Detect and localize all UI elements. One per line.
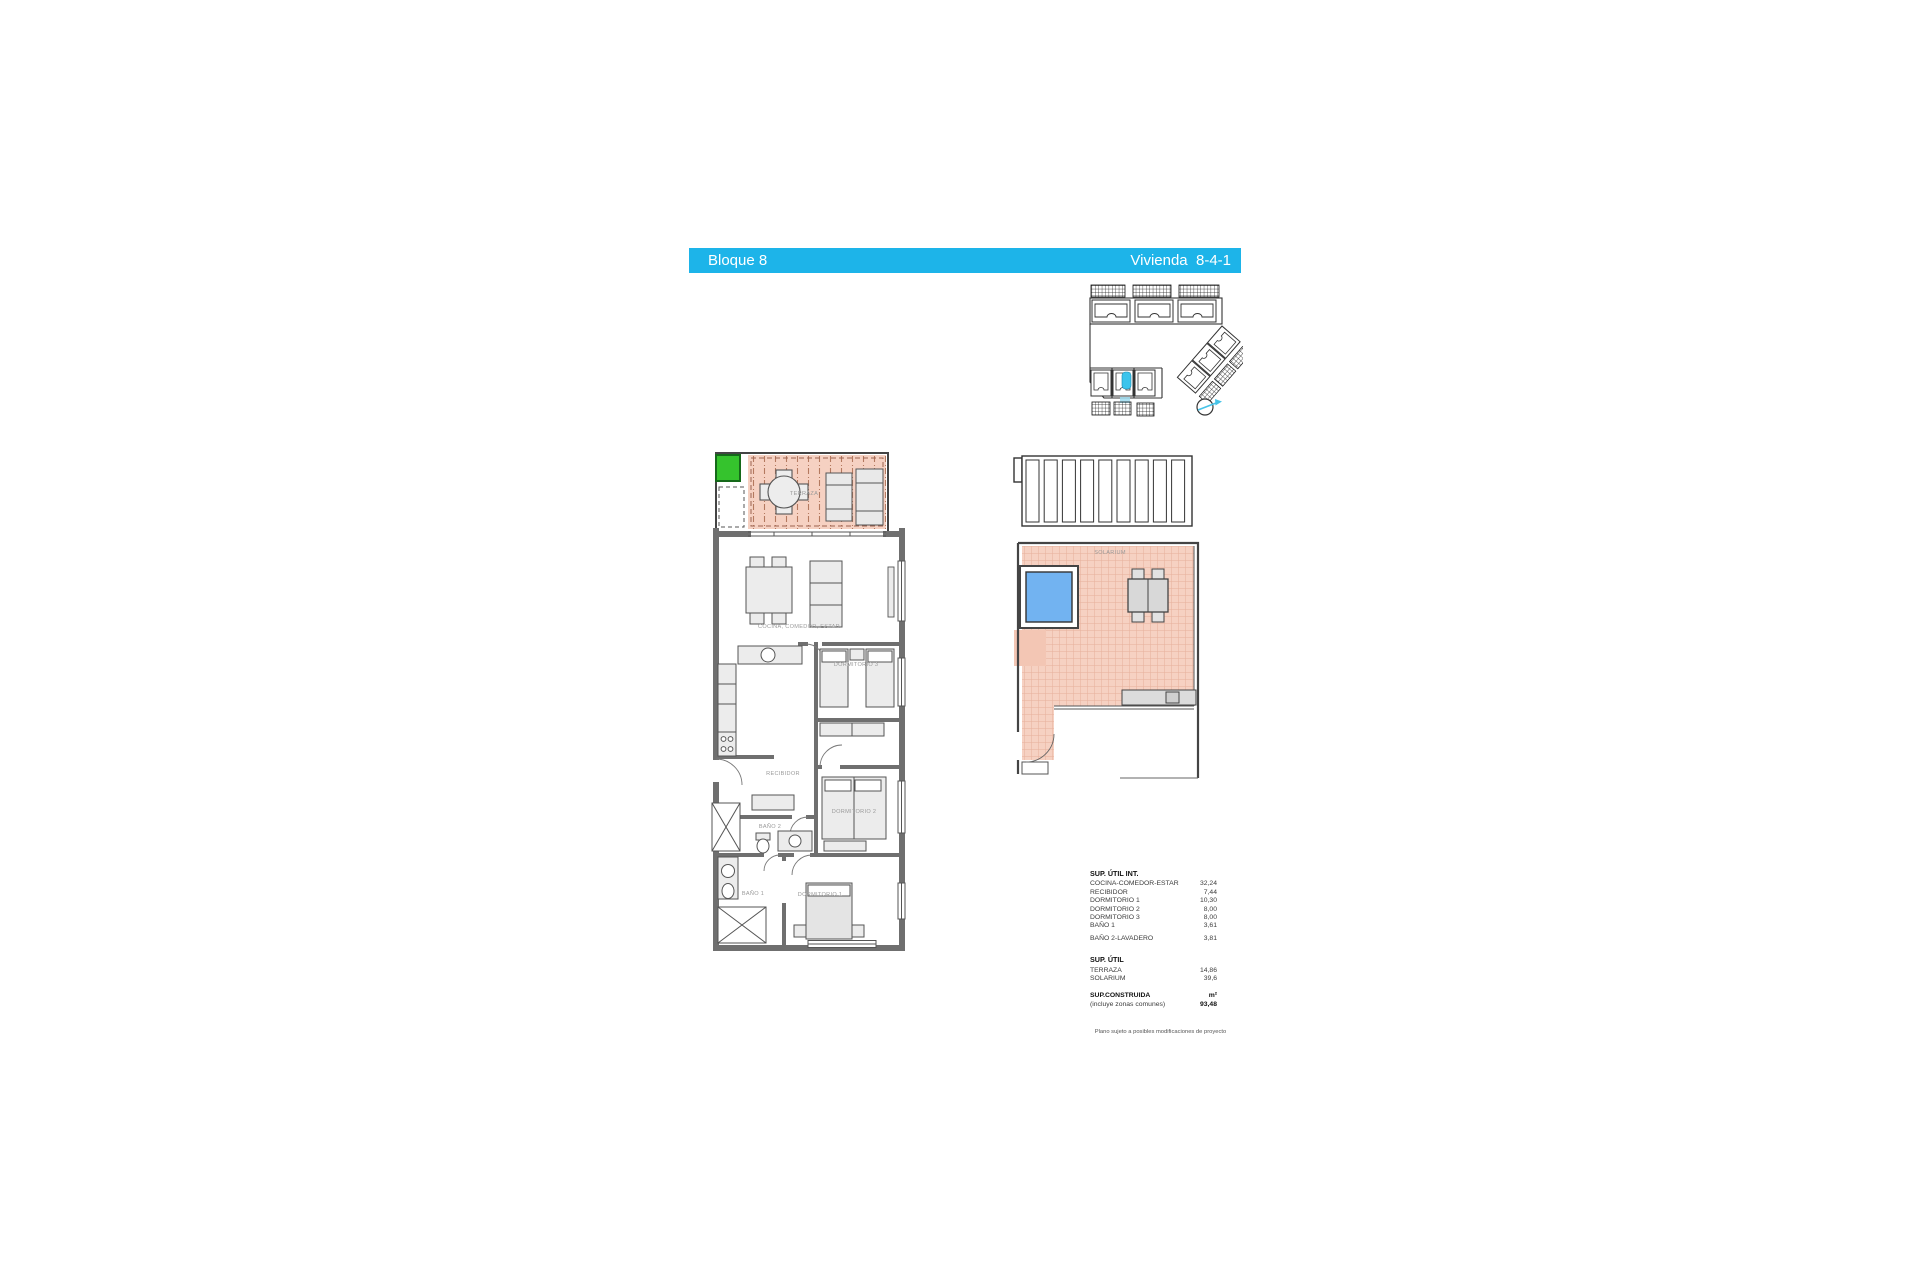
constructed-row-2: (incluye zonas comunes) 93,48 — [1090, 1001, 1217, 1009]
bath1 — [718, 857, 766, 943]
areas-int-title: SUP. ÚTIL INT. — [1090, 870, 1217, 878]
main-floorplan: TERRAZA — [704, 443, 934, 963]
table-row: COCINA-COMEDOR-ESTAR 32,24 — [1090, 880, 1217, 888]
terrace-label: TERRAZA — [790, 491, 818, 497]
areas-table: SUP. ÚTIL INT. COCINA-COMEDOR-ESTAR 32,2… — [1090, 870, 1217, 1009]
solarium-counter — [1122, 690, 1196, 705]
bedroom1-label: DORMITORIO 1 — [798, 892, 843, 898]
solarium-label: SOLARIUM — [1094, 550, 1126, 556]
sofa — [810, 561, 842, 627]
footnote: Plano sujeto a posibles modificaciones d… — [1083, 1029, 1238, 1036]
hall-sideboard — [752, 795, 794, 810]
bedroom3-label: DORMITORIO 3 — [834, 662, 879, 668]
solarium-plan: SOLARIUM — [1010, 448, 1240, 793]
block-label: Bloque 8 — [708, 252, 767, 269]
header-bar: Bloque 8 Vivienda 8-4-1 — [689, 248, 1241, 273]
table-row: RECIBIDOR 7,44 — [1090, 889, 1217, 897]
site-roof-terraces-top — [1091, 285, 1219, 297]
terrace: TERRAZA — [716, 453, 888, 531]
areas-ext-title: SUP. ÚTIL — [1090, 956, 1217, 964]
hall-label: RECIBIDOR — [766, 771, 800, 777]
table-row: SOLARIUM 39,6 — [1090, 975, 1217, 983]
unit-label: Vivienda 8-4-1 — [1130, 252, 1231, 269]
living-label: COCINA, COMEDOR, ESTAR — [758, 624, 840, 630]
table-row: DORMITORIO 2 8,00 — [1090, 906, 1217, 914]
entrance-marker — [716, 455, 740, 481]
bedroom2-label: DORMITORIO 2 — [832, 809, 877, 815]
site-roof-terraces-bottom — [1092, 402, 1154, 416]
bath1-label: BAÑO 1 — [742, 890, 764, 897]
pergola — [1014, 456, 1192, 526]
dining-table — [746, 557, 792, 624]
site-wing — [1177, 326, 1243, 404]
pool — [1020, 566, 1078, 628]
constructed-row: SUP.CONSTRUIDA m² — [1090, 992, 1217, 1000]
table-row: BAÑO 1 3,61 — [1090, 922, 1217, 930]
table-row: DORMITORIO 1 10,30 — [1090, 897, 1217, 905]
north-arrow-icon — [1197, 399, 1222, 415]
site-plan — [1078, 282, 1243, 432]
table-row: BAÑO 2-LAVADERO 3,81 — [1090, 935, 1217, 943]
kitchen — [718, 646, 802, 756]
table-row: TERRAZA 14,86 — [1090, 967, 1217, 975]
tv-cabinet — [888, 567, 894, 617]
bath2-label: BAÑO 2 — [759, 823, 781, 830]
